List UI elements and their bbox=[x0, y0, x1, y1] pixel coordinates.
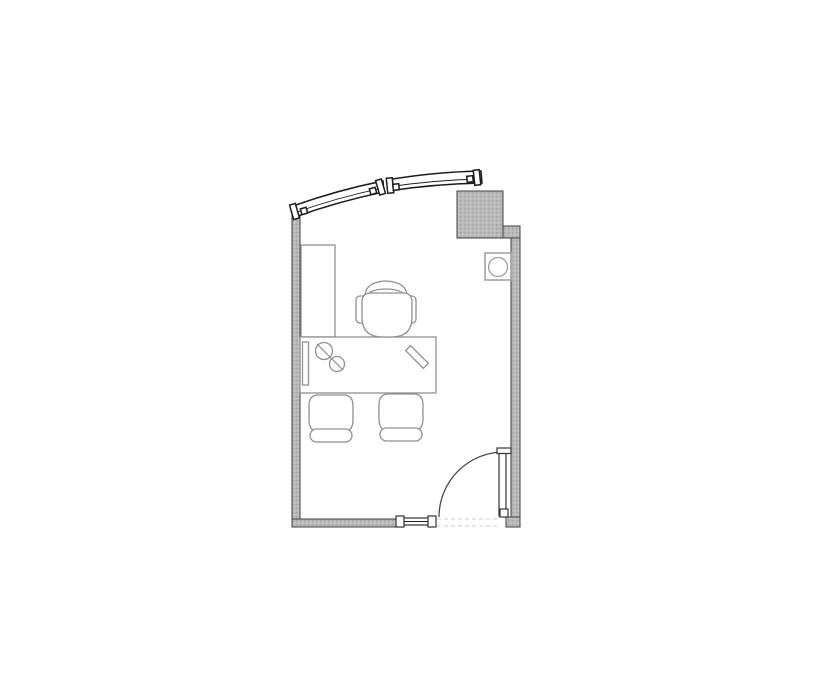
bottom-sidelight-window bbox=[396, 516, 436, 527]
bottom-wall bbox=[292, 519, 402, 527]
guest-chair-backrest bbox=[310, 429, 352, 442]
desk-tray bbox=[303, 342, 309, 385]
sidelight-end-cap bbox=[428, 516, 436, 527]
mullion-tick bbox=[393, 184, 400, 191]
door-hinge-jamb bbox=[500, 509, 508, 517]
sidelight-end-cap bbox=[396, 516, 404, 527]
guest-chair-backrest bbox=[380, 428, 422, 441]
task-chair bbox=[356, 281, 416, 337]
door-swing-arc bbox=[439, 452, 504, 517]
curved-window-segment-left bbox=[290, 179, 386, 220]
left-wall bbox=[292, 212, 300, 527]
mullion-tick bbox=[300, 207, 307, 214]
floor-plan-drawing bbox=[0, 0, 835, 678]
mullion-tick bbox=[369, 187, 376, 194]
furniture bbox=[300, 245, 436, 442]
task-chair-seat bbox=[362, 293, 412, 337]
bottom-right-wall-stub bbox=[506, 517, 520, 527]
guest-chair-seat bbox=[309, 395, 353, 433]
credenza bbox=[301, 245, 335, 337]
door-leaf bbox=[499, 452, 506, 516]
guest-chair-1 bbox=[309, 395, 353, 442]
equipment-box-circle bbox=[489, 258, 508, 277]
mullion-tick bbox=[467, 176, 474, 183]
window-end-cap bbox=[473, 170, 481, 186]
door-top-jamb bbox=[497, 448, 511, 454]
right-wall bbox=[511, 226, 520, 527]
wall-step bbox=[503, 226, 520, 238]
entry-door bbox=[437, 448, 511, 526]
guest-chair-seat bbox=[379, 394, 423, 432]
guest-chair-2 bbox=[379, 394, 423, 441]
floor-plan-canvas bbox=[0, 0, 835, 678]
curved-window-segment-right bbox=[386, 170, 482, 194]
column bbox=[457, 191, 503, 238]
equipment-box bbox=[485, 253, 511, 280]
